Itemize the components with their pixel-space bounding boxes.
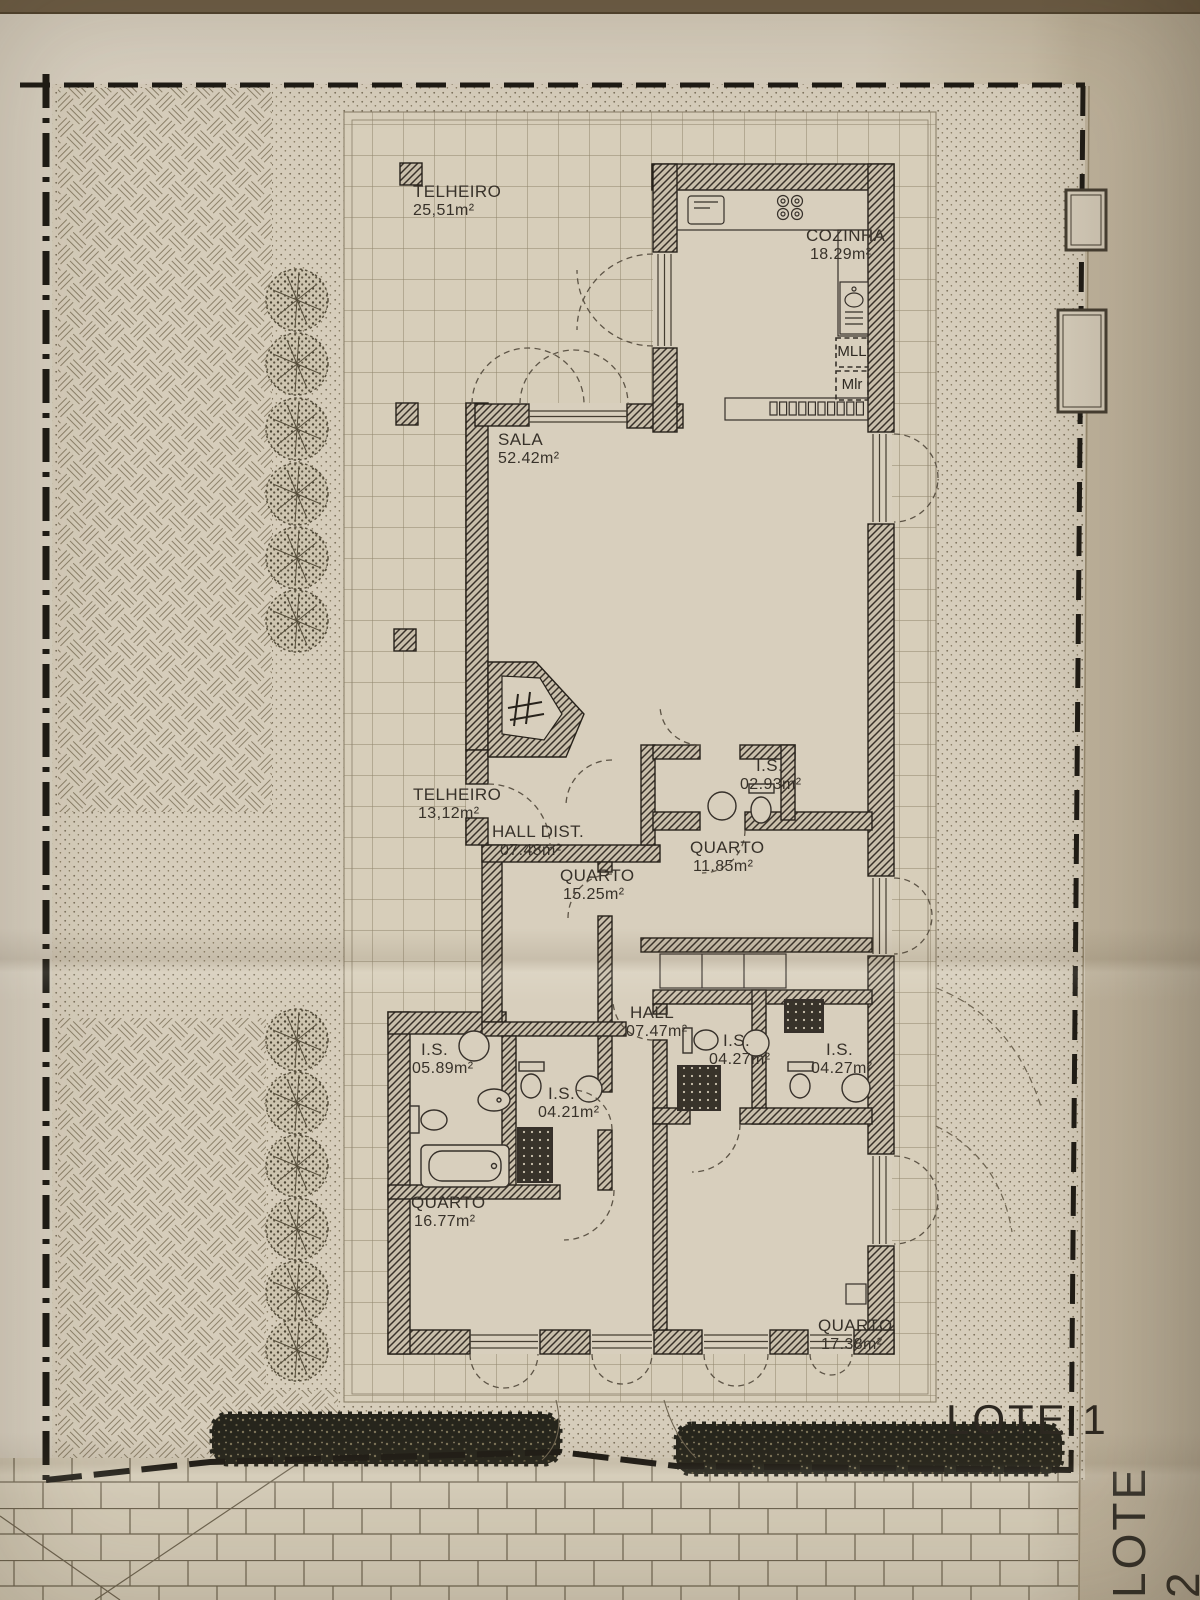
room-name: I.S.: [756, 756, 802, 776]
washing-machine-label: MLL: [835, 343, 869, 360]
room-area: 17.38m²: [821, 1336, 893, 1355]
room-name: QUARTO: [560, 866, 635, 886]
plan-svg: [0, 0, 1200, 1600]
room-area: 16.77m²: [414, 1213, 486, 1232]
room-area: 05.89m²: [412, 1060, 474, 1079]
room-area: 04.27m²: [811, 1060, 873, 1079]
room-area: 04.21m²: [538, 1104, 600, 1123]
garden-weave-paving-top: [58, 88, 272, 812]
planter-box-1: [1066, 190, 1106, 250]
telheiro-pillar: [396, 403, 418, 425]
bidet-icon: [478, 1089, 510, 1111]
room-area: 18.29m²: [810, 246, 885, 265]
room-area: 15.25m²: [563, 886, 635, 905]
room-label-is-west: I.S. 05.89m²: [412, 1040, 474, 1079]
room-name: SALA: [498, 430, 560, 450]
room-label-cozinha: COZINHA 18.29m²: [806, 226, 885, 265]
lot1-label: LOTE 1: [946, 1396, 1109, 1444]
room-name: QUARTO: [690, 838, 765, 858]
telheiro-pillar: [394, 629, 416, 651]
room-name: I.S.: [723, 1031, 771, 1051]
room-name: HALL DIST.: [492, 822, 584, 842]
shower-icon: [678, 1066, 720, 1110]
room-name: I.S.: [421, 1040, 474, 1060]
dryer-label: Mlr: [835, 376, 869, 393]
room-name: I.S.: [826, 1040, 873, 1060]
room-label-sala: SALA 52.42m²: [498, 430, 560, 469]
room-label-is-small: I.S. 04.21m²: [538, 1084, 600, 1123]
room-label-telheiro-side: TELHEIRO 13,12m²: [413, 785, 501, 824]
room-label-telheiro-top: TELHEIRO 25,51m²: [413, 182, 501, 221]
room-area: 07.48m²: [500, 842, 584, 861]
room-name: TELHEIRO: [413, 182, 501, 202]
bathtub-icon: [421, 1145, 509, 1187]
shower-icon: [518, 1128, 552, 1182]
room-name: I.S.: [548, 1084, 600, 1104]
planter-box-2: [1058, 310, 1106, 412]
room-label-quarto-sw: QUARTO 16.77m²: [411, 1193, 486, 1232]
room-label-quarto-se: QUARTO 17.38m²: [818, 1316, 893, 1355]
room-area: 13,12m²: [418, 805, 501, 824]
room-name: QUARTO: [411, 1193, 486, 1213]
room-name: QUARTO: [818, 1316, 893, 1336]
room-label-hall: HALL 07.47m²: [626, 1003, 688, 1042]
room-label-is-center: I.S. 04.27m²: [709, 1031, 771, 1070]
room-label-hall-dist: HALL DIST. 07.48m²: [492, 822, 584, 861]
room-label-quarto-ne: QUARTO 11.85m²: [690, 838, 765, 877]
sink-icon: [708, 792, 736, 820]
street-paving: [0, 1458, 1078, 1600]
shower-icon: [785, 1000, 823, 1032]
room-label-is-top: I.S. 02.93m²: [740, 756, 802, 795]
room-label-is-east: I.S. 04.27m²: [811, 1040, 873, 1079]
room-area: 25,51m²: [413, 202, 501, 221]
floor-plan-photo: TELHEIRO 25,51m² COZINHA 18.29m² SALA 52…: [0, 0, 1200, 1600]
kitchen-sink-icon: [840, 282, 868, 334]
room-area: 02.93m²: [740, 776, 802, 795]
room-area: 07.47m²: [626, 1023, 688, 1042]
room-area: 11.85m²: [693, 858, 765, 877]
room-name: HALL: [630, 1003, 688, 1023]
room-area: 52.42m²: [498, 450, 560, 469]
lot2-label: LOTE 2: [1102, 1466, 1200, 1598]
room-name: COZINHA: [806, 226, 885, 246]
room-name: TELHEIRO: [413, 785, 501, 805]
room-label-quarto-mid: QUARTO 15.25m²: [560, 866, 635, 905]
garden-weave-paving-bottom: [58, 1018, 266, 1462]
room-area: 04.27m²: [709, 1051, 771, 1070]
